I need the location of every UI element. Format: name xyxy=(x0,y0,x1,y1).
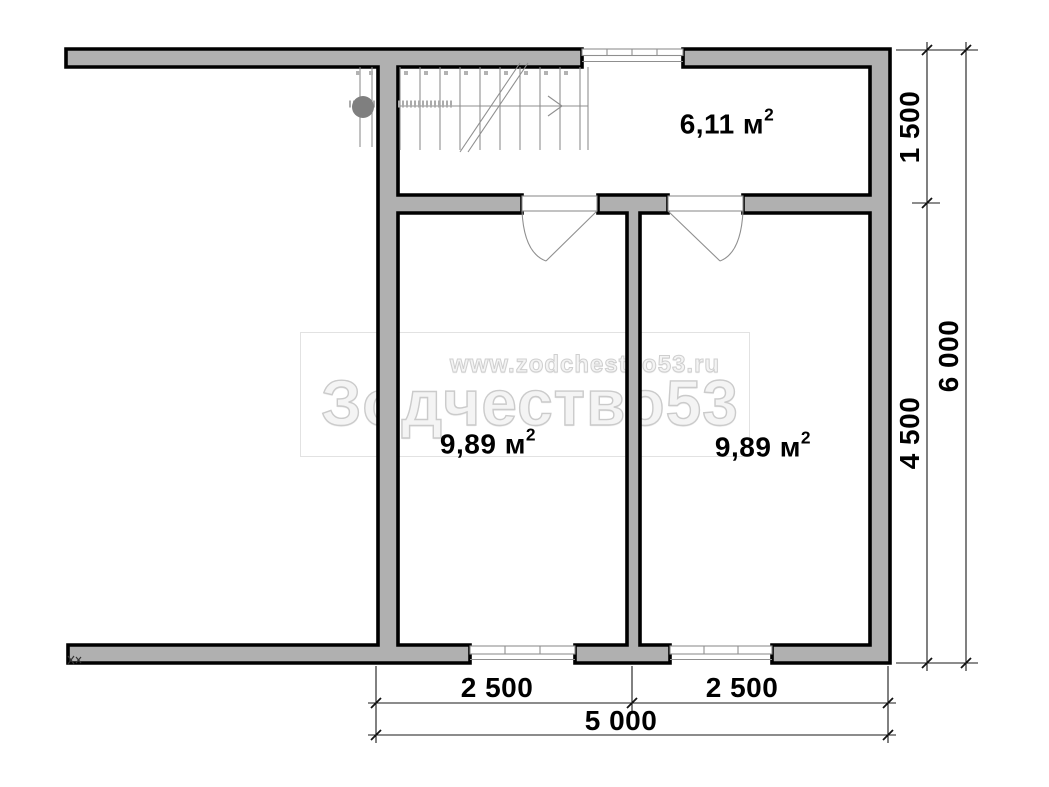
room-area-label-right: 9,89 м2 xyxy=(715,430,811,463)
dim-label-1500: 1 500 xyxy=(894,91,926,164)
floor-plan-page: www.zodchestvo53.ru Зодчество53 xyxy=(0,0,1049,787)
room-area-label-hall: 6,11 м2 xyxy=(680,107,775,140)
dim-label-2500-right: 2 500 xyxy=(706,672,779,704)
dim-label-2500-left: 2 500 xyxy=(461,672,534,704)
room-area-sup: 2 xyxy=(764,105,774,125)
window-top xyxy=(582,49,683,62)
room-area-value: 9,89 м xyxy=(715,432,801,463)
wall-middle-partition xyxy=(575,195,670,663)
door-left-room xyxy=(522,196,597,261)
door-right-room xyxy=(668,196,743,261)
room-area-label-left: 9,89 м2 xyxy=(440,427,536,460)
room-area-value: 9,89 м xyxy=(440,429,526,460)
floor-plan-drawing xyxy=(0,0,1049,787)
room-area-sup: 2 xyxy=(526,425,536,445)
dim-label-4500: 4 500 xyxy=(894,397,926,470)
window-bottom-left xyxy=(470,646,575,660)
wall-right-system xyxy=(683,49,890,663)
dim-label-6000: 6 000 xyxy=(933,320,965,393)
window-bottom-right xyxy=(670,646,772,660)
room-area-sup: 2 xyxy=(801,428,811,448)
wall-left-system xyxy=(66,49,582,663)
room-area-value: 6,11 м xyxy=(680,109,764,140)
dim-label-5000: 5 000 xyxy=(585,705,658,737)
walls xyxy=(66,49,890,663)
chimney-circle xyxy=(352,96,374,118)
